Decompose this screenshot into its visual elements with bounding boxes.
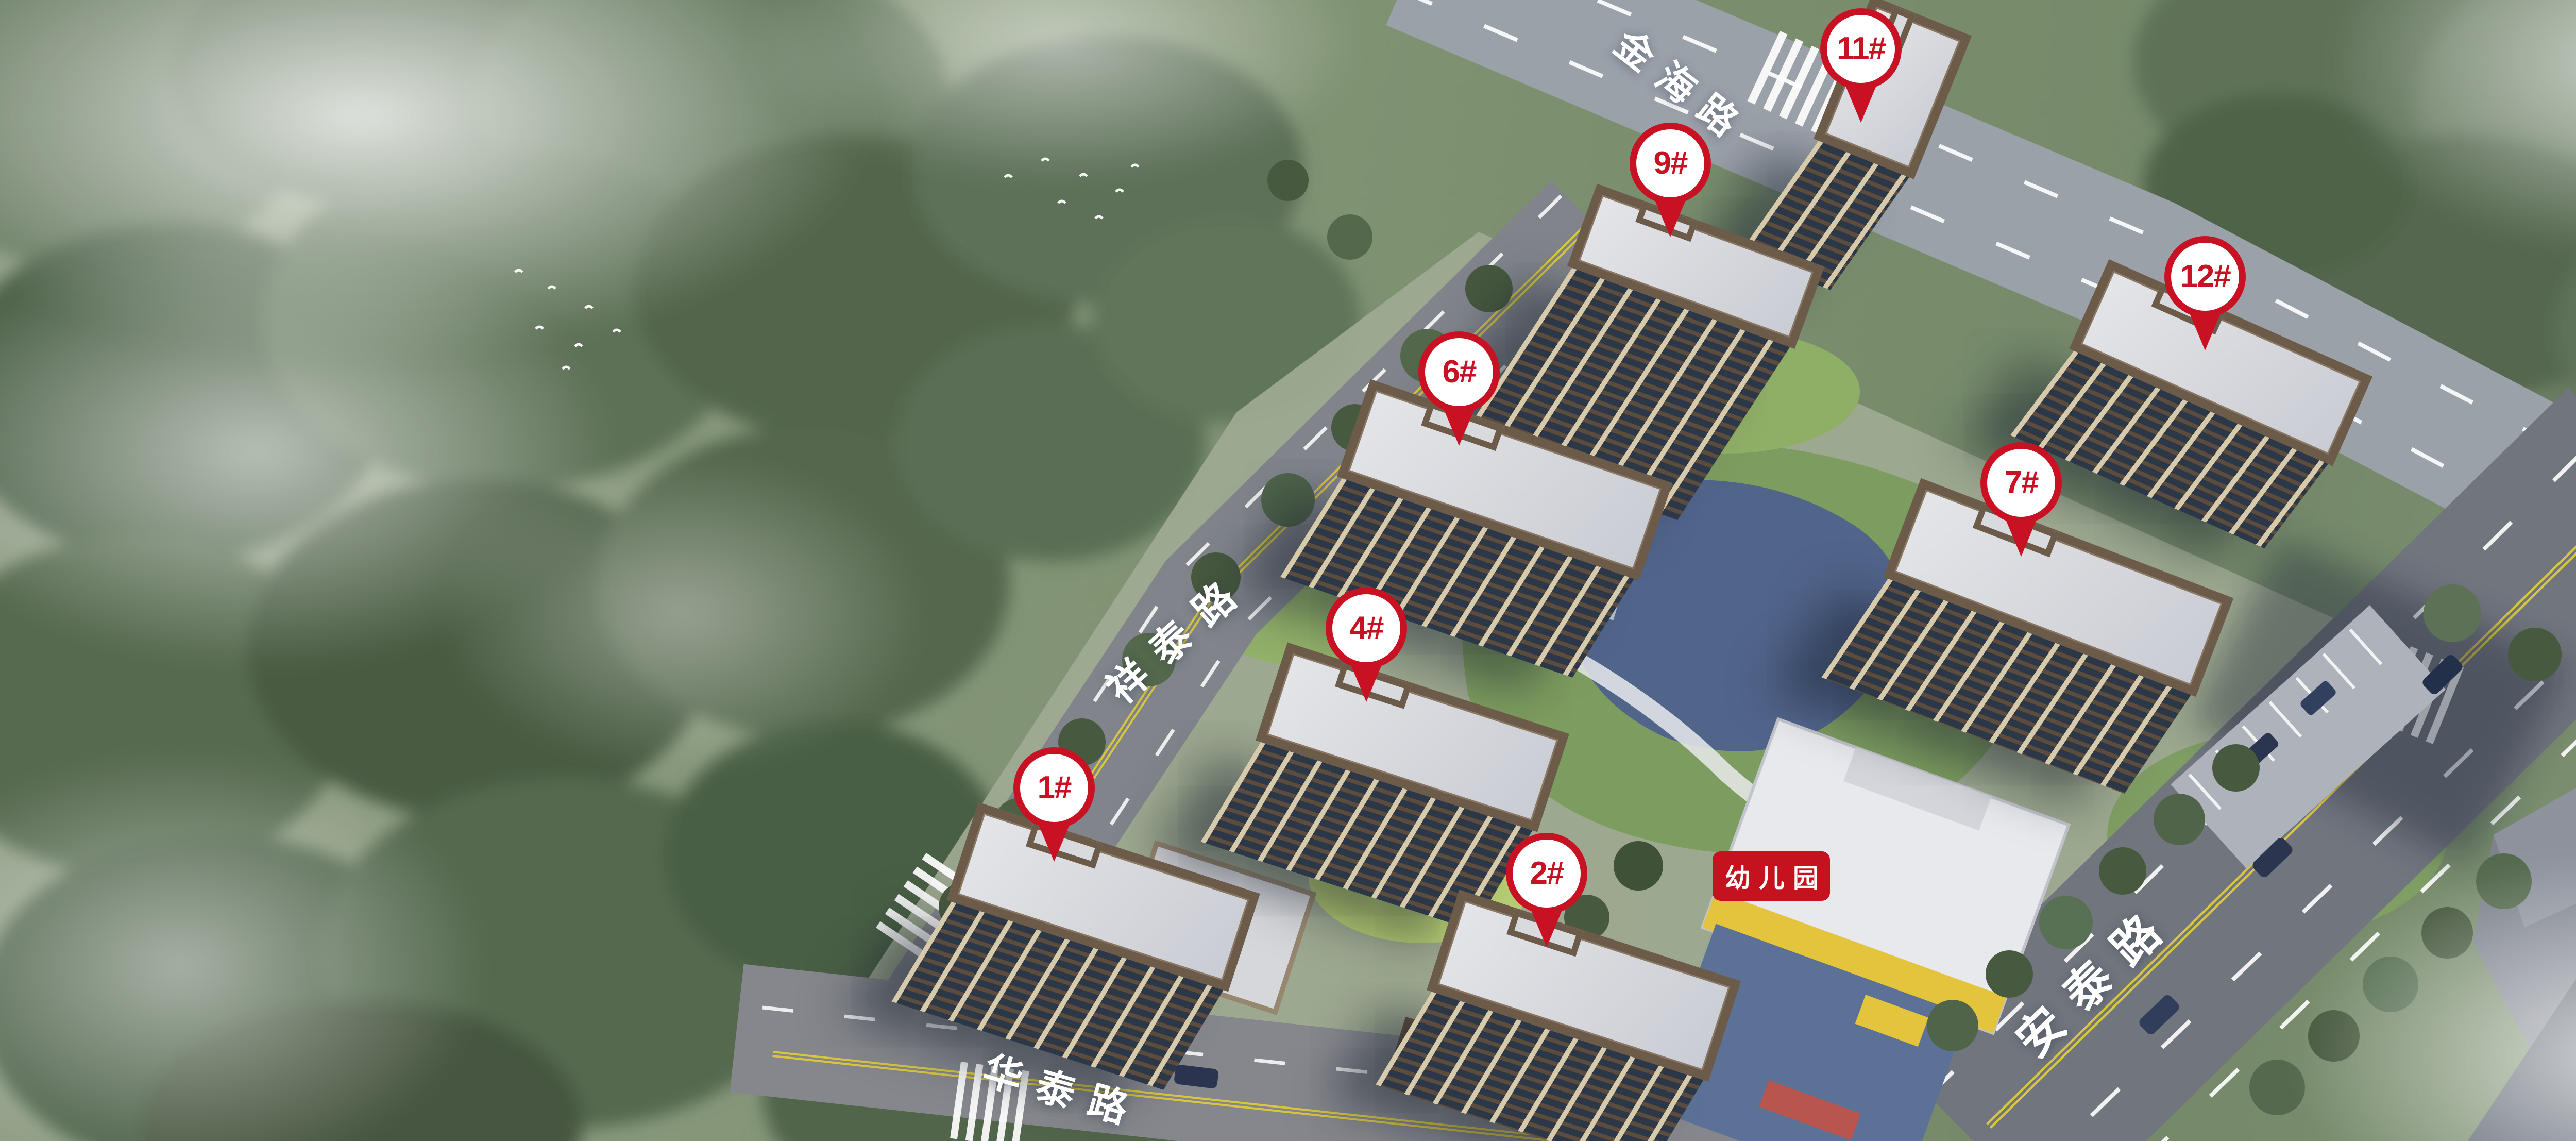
- kindergarten-badge: 幼儿园: [1713, 851, 1830, 901]
- marker-pin-1-label: 1#: [1013, 747, 1095, 829]
- marker-pin-7-label: 7#: [1980, 442, 2062, 524]
- marker-pin-4-label: 4#: [1326, 588, 1407, 669]
- aerial-rendering: 金海路 祥泰路 安泰路 华泰路 幼儿园 鸟瞰图 1# 2# 4# 6# 7# 9…: [0, 0, 2576, 1141]
- marker-pin-11-label: 11#: [1820, 8, 1902, 90]
- marker-pin-2-label: 2#: [1506, 833, 1587, 914]
- marker-pin-12-label: 12#: [2164, 236, 2246, 317]
- marker-pin-6-label: 6#: [1418, 331, 1500, 413]
- marker-pin-9-label: 9#: [1630, 123, 1711, 204]
